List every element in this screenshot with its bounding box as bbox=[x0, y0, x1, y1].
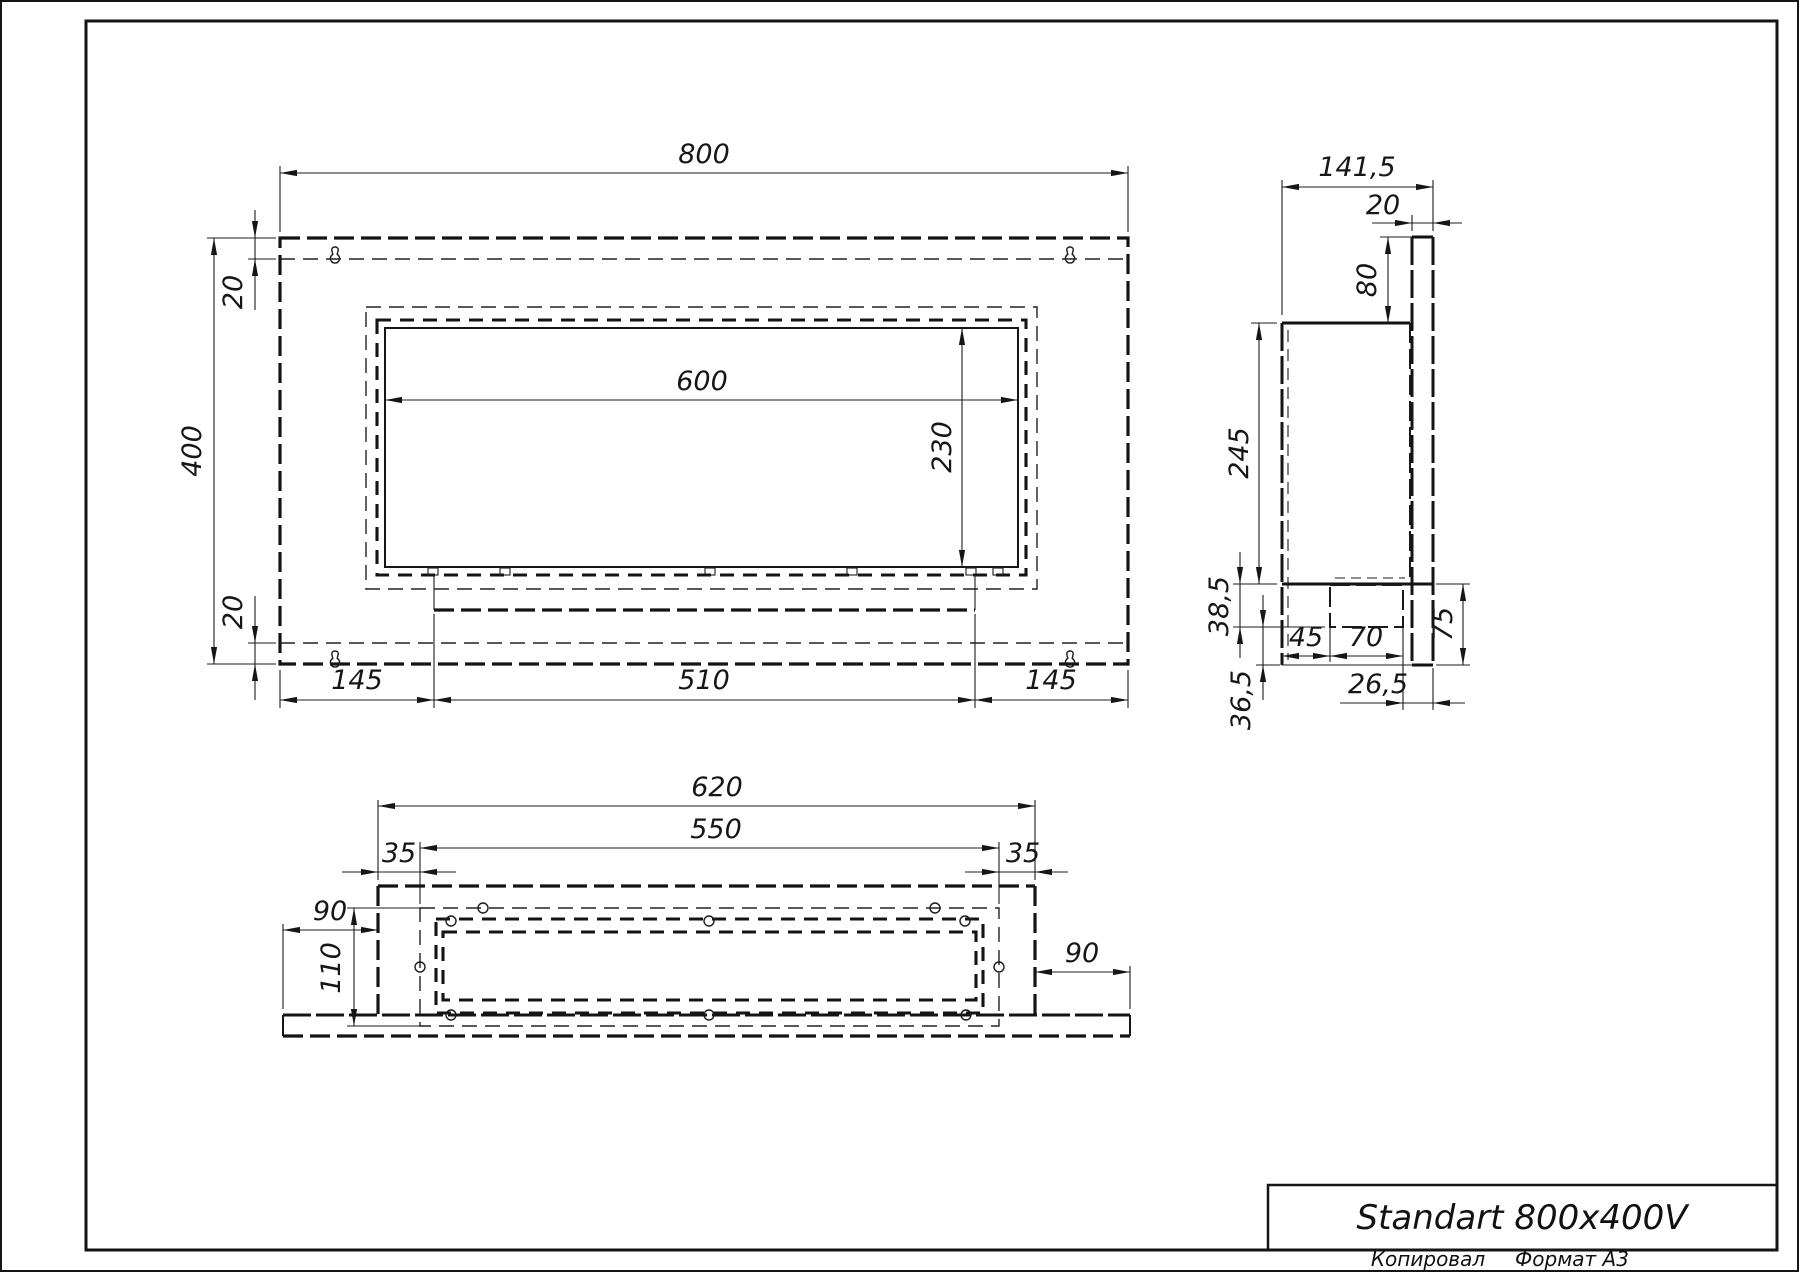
page-frame bbox=[1, 1, 1798, 1271]
dimension-arrowhead bbox=[1282, 653, 1299, 659]
dimension-arrows bbox=[211, 170, 1466, 1026]
dimension-arrowhead bbox=[351, 1009, 357, 1026]
dimension-arrowhead bbox=[982, 869, 999, 875]
format-label: Формат A3 bbox=[1515, 1247, 1629, 1271]
dimension-arrowhead bbox=[1035, 969, 1052, 975]
dim-body-height: 245 bbox=[1224, 427, 1255, 479]
dimension-arrowhead bbox=[420, 845, 437, 851]
dimension-arrowhead bbox=[1237, 627, 1243, 644]
dimension-arrowhead bbox=[982, 845, 999, 851]
dimension-arrowhead bbox=[252, 259, 258, 276]
dim-bracket-thickness: 20 bbox=[1366, 190, 1400, 221]
dimension-arrowhead bbox=[1237, 567, 1243, 584]
dimension-arrowhead bbox=[1385, 306, 1391, 323]
dimension-arrowhead bbox=[434, 697, 451, 703]
keyhole-icon bbox=[330, 247, 339, 263]
dim-back-offset: 26,5 bbox=[1348, 669, 1408, 700]
dimension-arrowhead bbox=[361, 869, 378, 875]
dimension-arrowhead bbox=[417, 697, 434, 703]
dimension-arrowhead bbox=[1330, 653, 1347, 659]
dimension-arrowhead bbox=[975, 697, 992, 703]
dimension-arrowhead bbox=[1313, 653, 1330, 659]
dimension-arrowhead bbox=[959, 550, 965, 567]
front-body-outline bbox=[280, 238, 1128, 664]
dimension-arrowhead bbox=[959, 328, 965, 345]
dimension-arrowhead bbox=[1260, 665, 1266, 682]
title-block: Standart 800x400V Копировал Формат A3 bbox=[1268, 1185, 1777, 1271]
front-dim-lines bbox=[207, 166, 1128, 708]
dim-bottom-inner-width: 550 bbox=[690, 814, 742, 845]
dimension-arrowhead bbox=[1256, 323, 1262, 340]
dimension-arrowhead bbox=[361, 927, 378, 933]
dim-bottom-width: 620 bbox=[691, 772, 743, 803]
dim-left-margin: 145 bbox=[331, 665, 383, 696]
dimension-arrowhead bbox=[1395, 220, 1412, 226]
drawing-sheet: 800 400 20 20 600 230 145 510 145 bbox=[0, 0, 1800, 1273]
dimension-arrowhead bbox=[378, 803, 395, 809]
dimension-arrowhead bbox=[1113, 969, 1130, 975]
dimension-arrowhead bbox=[252, 221, 258, 238]
dim-plate-right: 90 bbox=[1065, 938, 1099, 969]
dimension-arrowhead bbox=[1282, 184, 1299, 190]
drawing-canvas: 800 400 20 20 600 230 145 510 145 bbox=[0, 0, 1800, 1273]
dim-right-inset: 35 bbox=[1006, 838, 1040, 869]
dimension-arrowhead bbox=[1460, 584, 1466, 601]
dim-depth: 141,5 bbox=[1318, 152, 1395, 183]
dimension-arrowhead bbox=[1111, 170, 1128, 176]
bottom-view: 620 550 35 35 90 90 110 bbox=[283, 772, 1130, 1036]
dimension-arrowhead bbox=[1260, 610, 1266, 627]
dimension-arrowhead bbox=[1433, 220, 1450, 226]
dimension-arrowhead bbox=[1460, 648, 1466, 665]
dim-plate-left: 90 bbox=[313, 896, 347, 927]
front-tray bbox=[434, 576, 975, 610]
dim-front-width: 800 bbox=[678, 139, 730, 170]
dimension-arrowhead bbox=[1035, 869, 1052, 875]
side-view: 141,5 20 80 245 38,5 45 70 75 26,5 36,5 bbox=[1204, 152, 1470, 730]
dimension-arrowhead bbox=[351, 908, 357, 925]
dimension-arrowhead bbox=[283, 927, 300, 933]
dim-front-top-offset: 20 bbox=[218, 275, 249, 309]
dimension-arrowhead bbox=[420, 869, 437, 875]
front-opening bbox=[385, 328, 1018, 567]
dim-tray-width: 510 bbox=[678, 665, 730, 696]
dimension-arrowhead bbox=[1416, 184, 1433, 190]
dim-bottom-depth: 110 bbox=[316, 942, 347, 994]
dim-front-height: 400 bbox=[177, 425, 208, 477]
drawing-title: Standart 800x400V bbox=[1356, 1198, 1690, 1238]
dim-opening-width: 600 bbox=[676, 366, 728, 397]
side-fuel-tank bbox=[1330, 585, 1403, 627]
dimension-arrowhead bbox=[211, 238, 217, 255]
dimension-arrowhead bbox=[1001, 397, 1018, 403]
bottom-body bbox=[378, 886, 1035, 1015]
dim-front-gap: 45 bbox=[1289, 622, 1323, 653]
dimension-arrowhead bbox=[385, 397, 402, 403]
dim-tank-width: 70 bbox=[1349, 622, 1383, 653]
dimension-arrowhead bbox=[1111, 697, 1128, 703]
dimension-arrowhead bbox=[1433, 700, 1450, 706]
dim-burner-depth: 38,5 bbox=[1204, 576, 1235, 636]
dim-opening-height: 230 bbox=[927, 421, 958, 473]
dim-front-bottom-offset: 20 bbox=[218, 595, 249, 629]
dim-lower-height: 75 bbox=[1428, 607, 1459, 641]
dimension-arrowhead bbox=[280, 697, 297, 703]
dimension-arrowhead bbox=[1385, 237, 1391, 254]
dim-top-drop: 80 bbox=[1352, 263, 1383, 297]
dim-right-margin: 145 bbox=[1025, 665, 1077, 696]
dimension-arrowhead bbox=[252, 664, 258, 681]
dimension-arrowhead bbox=[252, 626, 258, 643]
dimension-arrowhead bbox=[1018, 803, 1035, 809]
bottom-mount-holes bbox=[415, 903, 1004, 1020]
dimension-arrowhead bbox=[1256, 567, 1262, 584]
dim-bottom-drop: 36,5 bbox=[1226, 670, 1257, 730]
side-wall-bracket bbox=[1412, 237, 1433, 665]
dimension-arrowhead bbox=[958, 697, 975, 703]
bottom-niche-inner bbox=[443, 932, 976, 1000]
dimension-arrowhead bbox=[280, 170, 297, 176]
dimension-arrowhead bbox=[1386, 700, 1403, 706]
dimension-arrowhead bbox=[1386, 653, 1403, 659]
front-view: 800 400 20 20 600 230 145 510 145 bbox=[177, 139, 1128, 708]
copied-label: Копировал bbox=[1371, 1247, 1485, 1271]
keyhole-icon bbox=[1065, 247, 1074, 263]
dim-left-inset: 35 bbox=[382, 838, 416, 869]
dimension-arrowhead bbox=[211, 647, 217, 664]
